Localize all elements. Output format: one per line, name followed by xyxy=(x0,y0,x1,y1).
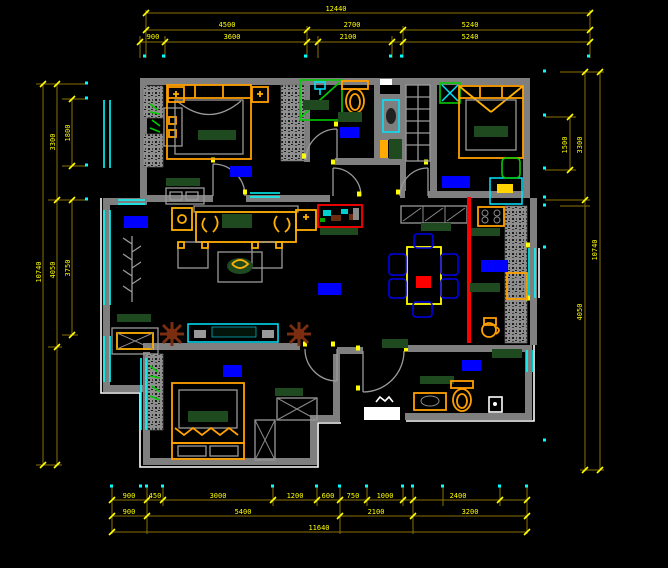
dim-text: 2400 xyxy=(450,492,467,500)
laptop-icon xyxy=(497,184,513,193)
room-label-living-room xyxy=(124,216,148,228)
dim-text: 3300 xyxy=(49,134,57,151)
dim-text: 600 xyxy=(322,492,335,500)
counter-shelf xyxy=(470,283,500,292)
dim-text: 4500 xyxy=(219,21,236,29)
dim-text: 3000 xyxy=(210,492,227,500)
dim-text: 4050 xyxy=(49,262,57,279)
dim-text: 2100 xyxy=(340,33,357,41)
dim-text: 1000 xyxy=(377,492,394,500)
dim-text: 10740 xyxy=(591,239,599,260)
dim-text: 900 xyxy=(123,492,136,500)
entry-landing xyxy=(364,407,400,420)
dim-text: 11640 xyxy=(308,524,329,532)
room-label-bathroom-1 xyxy=(340,127,359,138)
potted-plant xyxy=(287,322,311,346)
dim-text: 5240 xyxy=(462,33,479,41)
potted-plant xyxy=(160,322,184,346)
dim-text: 450 xyxy=(149,492,162,500)
room-label-bedroom-1 xyxy=(230,166,252,177)
dim-text: 3200 xyxy=(462,508,479,516)
dim-text: 2100 xyxy=(368,508,385,516)
room-label-hallway xyxy=(318,283,341,295)
bed-blanket xyxy=(188,411,228,422)
dim-text: 4050 xyxy=(576,304,584,321)
counter-shelf xyxy=(471,228,500,236)
cad-canvas[interactable]: 12440 4500 2700 5240 900 3600 2100 5240 … xyxy=(0,0,668,568)
floor-plan-drawing: 12440 4500 2700 5240 900 3600 2100 5240 … xyxy=(0,0,668,568)
room-label-bedroom-2 xyxy=(442,176,470,188)
bed-blanket xyxy=(198,130,236,140)
room-label-bathroom-2 xyxy=(462,360,481,371)
dim-text: 750 xyxy=(347,492,360,500)
dim-text: 3300 xyxy=(576,137,584,154)
sofa-cushion xyxy=(222,214,252,228)
dim-text: 3750 xyxy=(64,260,72,277)
red-highlight-wall xyxy=(467,197,471,343)
balcony-shelf xyxy=(117,314,151,322)
shower-bench xyxy=(303,100,329,110)
bed-blanket xyxy=(474,126,508,137)
dim-text: 2700 xyxy=(344,21,361,29)
bath-shelf xyxy=(338,112,362,122)
top-wall-vent xyxy=(380,79,392,85)
bench-cushion xyxy=(166,178,200,186)
room-label-bedroom-3 xyxy=(223,365,242,377)
dim-text: 900 xyxy=(147,33,160,41)
shelf xyxy=(320,228,358,235)
dim-text: 10740 xyxy=(35,261,43,282)
dim-text: 1200 xyxy=(287,492,304,500)
shelf xyxy=(420,376,454,384)
cabinet-door xyxy=(389,139,402,159)
shelf xyxy=(275,388,303,396)
dim-text: 12440 xyxy=(325,5,346,13)
dim-text: 3600 xyxy=(224,33,241,41)
tv-icon xyxy=(212,327,256,337)
wardrobe-hatched xyxy=(281,85,305,161)
shelf xyxy=(382,339,408,348)
room-label-kitchen xyxy=(481,260,508,272)
dim-text: 1800 xyxy=(64,125,72,142)
washbasin xyxy=(386,108,396,124)
table-centerpiece xyxy=(416,276,431,288)
cabinet-door xyxy=(380,140,388,158)
dim-text: 5240 xyxy=(462,21,479,29)
shelf xyxy=(492,349,522,358)
dim-text: 900 xyxy=(123,508,136,516)
dim-text: 5400 xyxy=(235,508,252,516)
shelf xyxy=(421,223,451,231)
kitchen-counter-hatched xyxy=(505,206,527,343)
dim-text: 1500 xyxy=(561,137,569,154)
